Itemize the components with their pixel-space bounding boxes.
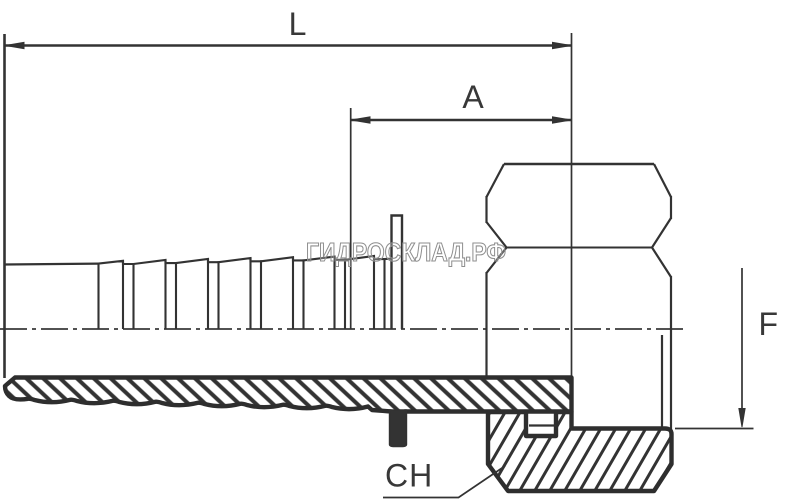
svg-text:ГИДРОСКЛАД.РФ: ГИДРОСКЛАД.РФ [306, 239, 506, 267]
svg-text:F: F [759, 306, 779, 342]
svg-text:A: A [462, 79, 484, 115]
svg-text:L: L [289, 6, 307, 42]
svg-text:CH: CH [385, 458, 433, 494]
